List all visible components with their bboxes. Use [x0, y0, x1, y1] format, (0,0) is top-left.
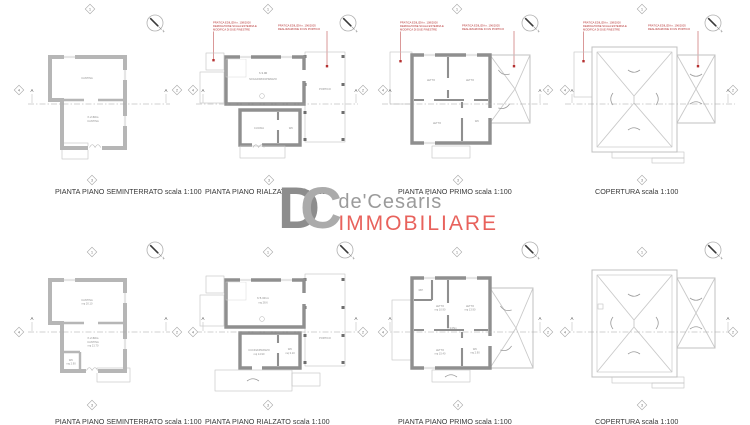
north-arrow-icon: [705, 242, 723, 259]
portico-roof: [215, 370, 292, 391]
area-label: mq 10.90: [435, 308, 446, 312]
agency-tagline: IMMOBILIARE: [338, 212, 498, 236]
svg-text:MODIFICA DI DUE FINESTRE: MODIFICA DI DUE FINESTRE: [213, 28, 250, 32]
annex-roof: [490, 288, 533, 368]
north-arrow-icon: [340, 15, 358, 32]
plan-seminterrato-bottom: 1 CANTINA mq 20.10 h 2.60m CANTINA mq 21…: [14, 242, 201, 425]
monogram-letter-d: D: [278, 176, 300, 241]
svg-text:REALIZZAZIONE DI UN PORTICO: REALIZZAZIONE DI UN PORTICO: [278, 27, 320, 31]
svg-text:DEMOLIZIONE SCALA ESTERNA E: DEMOLIZIONE SCALA ESTERNA E: [400, 24, 444, 28]
area-label: mq 15.40: [435, 352, 446, 356]
agency-name: de'Cesaris: [338, 191, 498, 214]
section-letter: A: [389, 88, 392, 93]
agency-monogram: DC: [278, 186, 322, 231]
building-permit-note: PRATICA EDILIZIA n. 108/2000: [583, 21, 621, 25]
axis-marker-4: 4: [192, 88, 194, 92]
axis-marker-3: 3: [267, 403, 269, 407]
outer-walls: [50, 57, 125, 148]
monogram-letter-c: C: [300, 176, 322, 241]
room-label: CANTINA: [81, 76, 93, 80]
area-label: mq 21.70: [88, 344, 99, 348]
axis-marker-4: 4: [18, 330, 20, 334]
axis-marker-1: 1: [267, 250, 269, 254]
section-letter: A: [539, 88, 542, 93]
external-stair: [432, 146, 470, 158]
main-roof: [592, 47, 677, 152]
section-letter: A: [202, 316, 205, 321]
axis-marker-2: 2: [362, 88, 364, 92]
room-label: LETTO: [466, 304, 474, 308]
plan-title: PIANTA PIANO PRIMO scala 1:100: [398, 417, 512, 425]
axis-marker-1: 1: [91, 250, 93, 254]
building-permit-note: PRATICA EDILIZIA n. 196/2005: [462, 24, 500, 28]
height-label: h 3.00: [259, 71, 268, 75]
building-permit-note: PRATICA EDILIZIA n. 108/2000: [400, 21, 438, 25]
portico-area: [305, 274, 345, 366]
axis-marker-4: 4: [18, 88, 20, 92]
entry-steps: [612, 152, 684, 158]
axis-marker-3: 3: [457, 178, 459, 182]
svg-text:DEMOLIZIONE SCALA ESTERNA E: DEMOLIZIONE SCALA ESTERNA E: [583, 24, 627, 28]
room-label: CUCINA: [254, 126, 264, 130]
axis-marker-1: 1: [456, 7, 458, 11]
plan-seminterrato-top: 1 CANTINA h 2.60m CANTINA A A 4 2 3 PIAN…: [14, 4, 201, 196]
section-letter: A: [389, 316, 392, 321]
section-letter: A: [571, 316, 574, 321]
room-label: LETTO: [436, 304, 444, 308]
annex-roof: [490, 55, 530, 123]
room-label: WC: [69, 358, 73, 362]
external-stair: [200, 295, 224, 326]
room-label: WC: [473, 347, 477, 351]
axis-marker-1: 1: [641, 250, 643, 254]
section-letter: A: [31, 88, 34, 93]
entry-steps: [612, 377, 684, 383]
agency-watermark: DC de'Cesaris IMMOBILIARE: [278, 186, 498, 236]
outer-walls: [412, 278, 490, 368]
area-label: mq 2.90: [66, 362, 76, 366]
axis-marker-4: 4: [564, 88, 566, 92]
axis-marker-2: 2: [547, 330, 549, 334]
portico-area: [305, 52, 345, 142]
north-arrow-icon: [705, 15, 723, 32]
north-arrow-icon: [522, 242, 540, 259]
building-permit-note: PRATICA EDILIZIA n. 108/2000: [213, 21, 251, 25]
external-stair: [432, 370, 470, 382]
section-letter: A: [727, 316, 730, 321]
svg-text:MODIFICA DI DUE FINESTRE: MODIFICA DI DUE FINESTRE: [583, 28, 620, 32]
axis-marker-2: 2: [547, 88, 549, 92]
plan-rialzato-bottom: 1 h 5.30 m mq 28.6 CUCINA/PRANZO mq 14.9…: [188, 242, 368, 425]
axis-marker-1: 1: [456, 250, 458, 254]
area-label: mq 2.90: [470, 351, 480, 355]
axis-marker-4: 4: [382, 330, 384, 334]
plan-title: PIANTA PIANO SEMINTERRATO scala 1:100: [55, 187, 202, 196]
room-label: CANTINA: [87, 119, 99, 123]
external-stair: [62, 143, 88, 159]
room-label: LETTO: [427, 78, 435, 82]
room-label: RIP.: [419, 288, 424, 292]
section-letter: A: [539, 316, 542, 321]
plan-primo-bottom: 1 RIP. LETTO mq 10.90 LETTO mq 13.90 LET…: [378, 242, 553, 425]
area-label: mq 20.10: [82, 302, 93, 306]
room-label: WC: [475, 119, 479, 123]
section-letter: A: [202, 88, 205, 93]
axis-marker-2: 2: [362, 330, 364, 334]
drawing-sheet: 1 CANTINA h 2.60m CANTINA A A 4 2 3 PIAN…: [0, 0, 750, 425]
axis-marker-4: 4: [192, 330, 194, 334]
room-label: LETTO: [466, 78, 474, 82]
axis-marker-1: 1: [641, 7, 643, 11]
room-label: SOGGIORNO/PRANZO: [249, 77, 277, 81]
room-label: WC: [289, 126, 293, 130]
room-label: CUCINA/PRANZO: [248, 348, 269, 352]
terrace-area: [390, 52, 412, 104]
axis-marker-3: 3: [457, 403, 459, 407]
axis-marker-1: 1: [267, 7, 269, 11]
axis-marker-3: 3: [91, 178, 93, 182]
axis-marker-4: 4: [564, 330, 566, 334]
axis-marker-3: 3: [268, 178, 270, 182]
room-label: CANTINA: [87, 340, 99, 344]
plan-title: PIANTA PIANO SEMINTERRATO scala 1:100: [55, 417, 202, 425]
terrace-area: [574, 52, 592, 97]
outer-walls: [50, 280, 125, 371]
axis-marker-2: 2: [176, 330, 178, 334]
height-label: h 2.60m: [88, 336, 99, 340]
demolished-annex: [206, 53, 224, 70]
axis-marker-2: 2: [176, 88, 178, 92]
height-label: h 2.60m: [88, 115, 99, 119]
external-stair: [240, 146, 285, 158]
north-arrow-icon: [147, 242, 165, 259]
area-label: mq 3.10: [285, 351, 295, 355]
room-label: CANTINA: [81, 298, 93, 302]
axis-marker-2: 2: [732, 88, 734, 92]
height-label: h 5.30 m: [257, 296, 269, 300]
svg-text:REALIZZAZIONE DI UN PORTICO: REALIZZAZIONE DI UN PORTICO: [462, 27, 504, 31]
axis-marker-1: 1: [89, 7, 91, 11]
section-letter: A: [31, 316, 34, 321]
building-permit-note: PRATICA EDILIZIA n. 196/2005: [278, 24, 316, 28]
room-label: PORTICO: [319, 87, 331, 91]
north-arrow-icon: [522, 15, 540, 32]
room-label: WC: [288, 347, 292, 351]
plan-title: COPERTURA scala 1:100: [595, 187, 678, 196]
building-permit-note: PRATICA EDILIZIA n. 196/2005: [648, 24, 686, 28]
section-letter: A: [571, 88, 574, 93]
plan-title: PIANTA PIANO RIALZATO scala 1:100: [205, 417, 330, 425]
main-roof: [592, 270, 677, 377]
section-letter: A: [165, 88, 168, 93]
plan-title: COPERTURA scala 1:100: [595, 417, 678, 425]
plan-copertura-top: 1 PRATICA EDILIZIA n. 108/2000 DEMOLIZIO…: [560, 4, 738, 196]
room-label: PORTICO: [319, 336, 331, 340]
area-label: mq 13.90: [465, 308, 476, 312]
room-label: LETTO: [433, 121, 441, 125]
axis-marker-3: 3: [641, 403, 643, 407]
area-label: mq 14.90: [254, 352, 265, 356]
height-label: h 3.05m: [447, 326, 456, 330]
section-letter: A: [165, 316, 168, 321]
plan-primo-top: 1 PRATICA EDILIZIA n. 108/2000 DEMOLIZIO…: [378, 4, 553, 196]
north-arrow-icon: [337, 242, 355, 259]
north-arrow-icon: [147, 15, 165, 32]
section-letter: A: [355, 316, 358, 321]
axis-marker-4: 4: [382, 88, 384, 92]
axis-marker-3: 3: [91, 403, 93, 407]
section-letter: A: [355, 88, 358, 93]
plan-copertura-bottom: 1 A A 4 2 3 COPERTURA scala 1:100: [560, 242, 738, 425]
svg-text:DEMOLIZIONE SCALA ESTERNA E: DEMOLIZIONE SCALA ESTERNA E: [213, 24, 257, 28]
room-label: LETTO: [436, 348, 444, 352]
svg-text:MODIFICA DI DUE FINESTRE: MODIFICA DI DUE FINESTRE: [400, 28, 437, 32]
axis-marker-2: 2: [732, 330, 734, 334]
plan-rialzato-top: 1 PRATICA EDILIZIA n. 108/2000 DEMOLIZIO…: [188, 4, 368, 196]
terrace-area: [392, 300, 412, 360]
axis-marker-3: 3: [641, 178, 643, 182]
area-label: mq 28.6: [258, 301, 268, 305]
svg-text:REALIZZAZIONE DI UN PORTICO: REALIZZAZIONE DI UN PORTICO: [648, 27, 690, 31]
